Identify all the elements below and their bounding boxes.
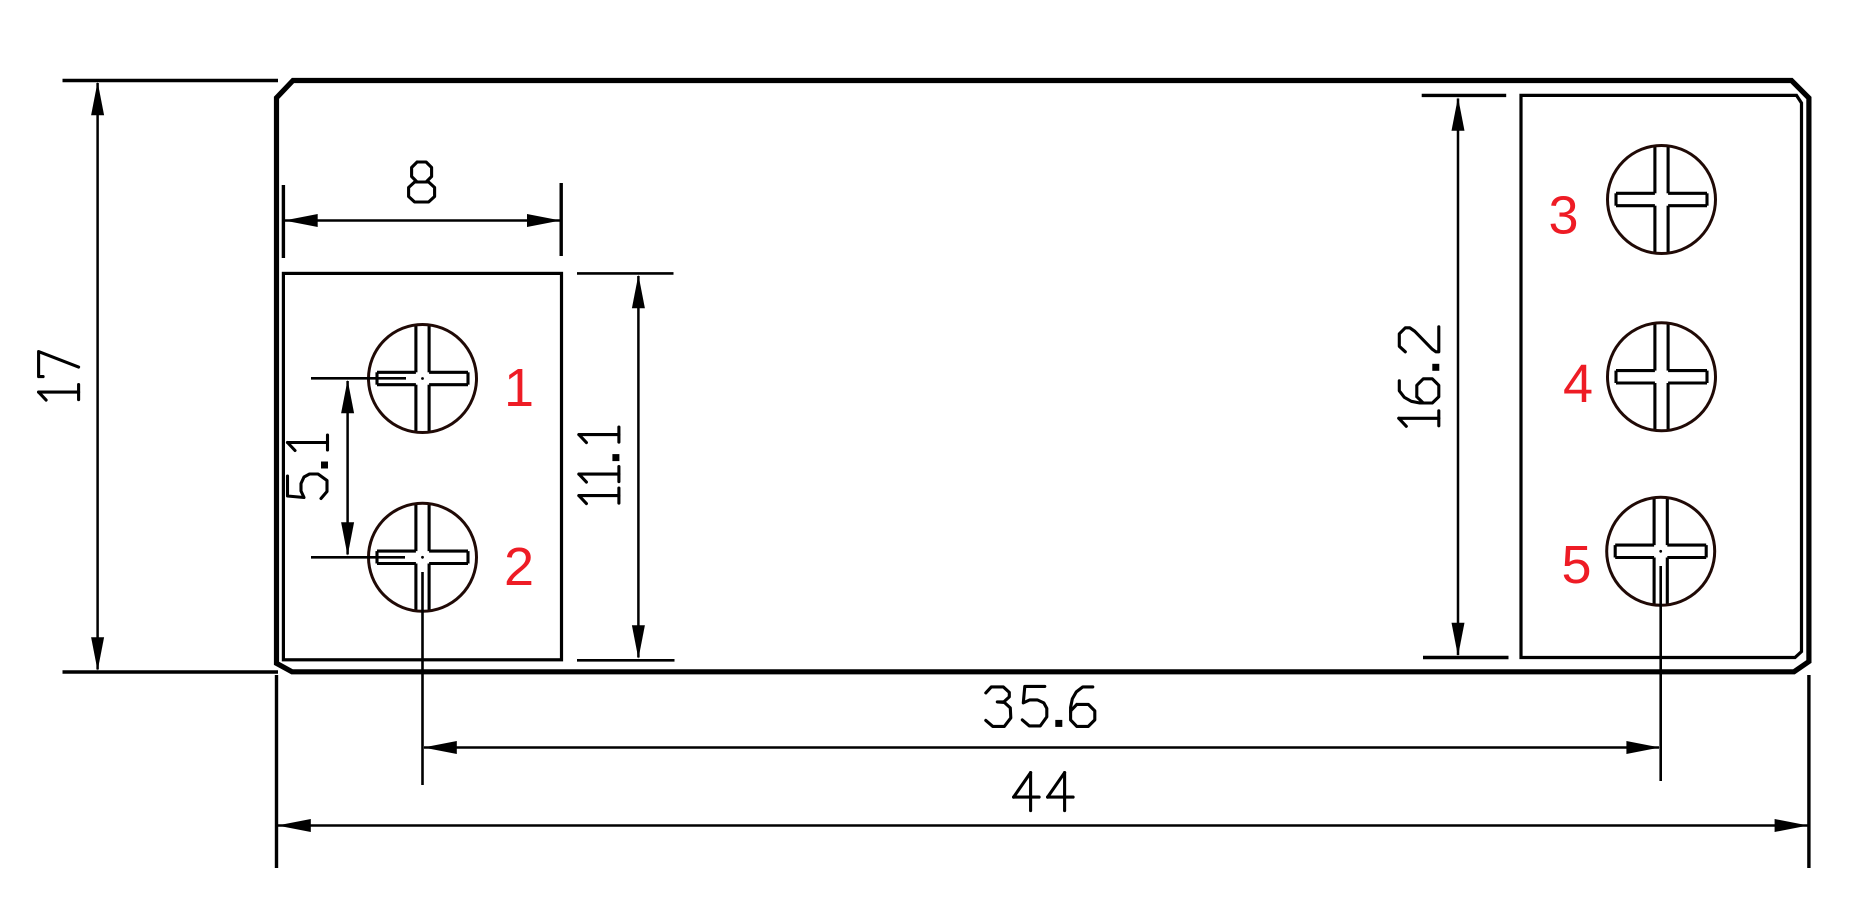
svg-text:2: 2 (504, 537, 534, 597)
svg-text:5: 5 (1561, 535, 1591, 595)
svg-text:3: 3 (1548, 186, 1578, 246)
svg-text:4: 4 (1563, 354, 1593, 414)
svg-text:1: 1 (504, 358, 534, 418)
